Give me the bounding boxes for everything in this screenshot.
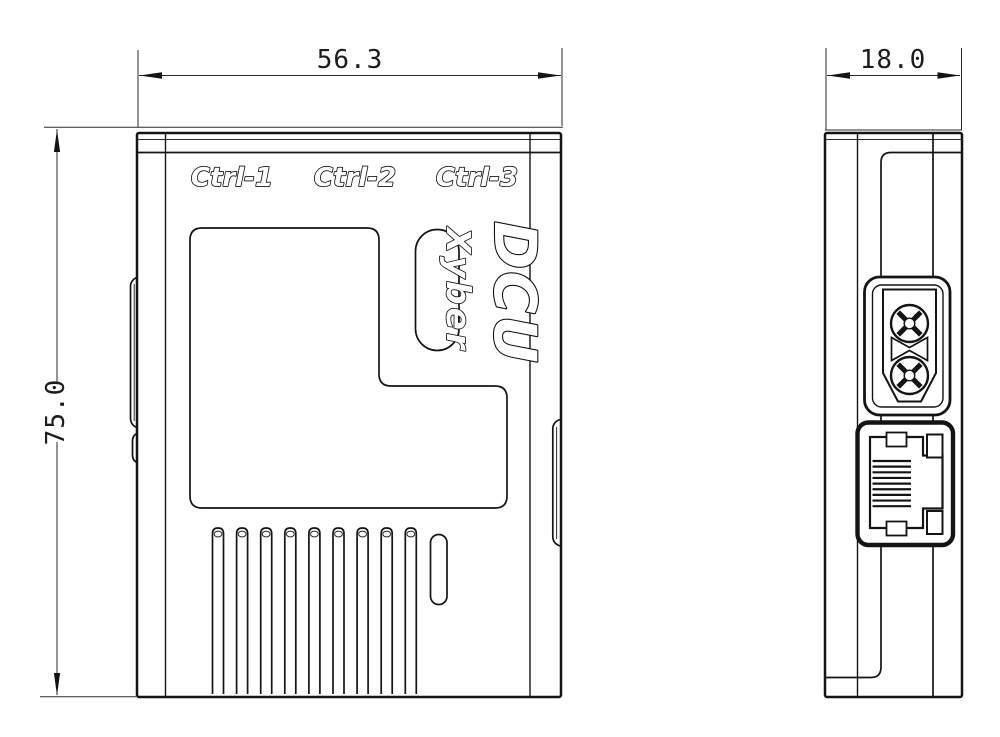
vent-slot-cap xyxy=(214,531,222,537)
front-view: 56.3 75.0 xyxy=(40,45,563,697)
side-view: 18.0 xyxy=(825,45,962,697)
enclosure-front: Ctrl-1 Ctrl-2 Ctrl-3 DCU Xyber xyxy=(131,133,562,697)
vent-slot-cap xyxy=(311,531,319,537)
ctrl-2-label: Ctrl-2 xyxy=(314,163,396,193)
dim-arrow-left xyxy=(140,72,163,78)
mount-tab-top xyxy=(887,433,907,447)
power-connector xyxy=(865,277,951,415)
vent-slot-cap xyxy=(286,531,294,537)
width-dimension: 56.3 xyxy=(138,45,562,127)
vent-slot xyxy=(357,528,368,694)
vent-slot-cap xyxy=(407,531,415,537)
depth-value: 18.0 xyxy=(860,45,927,75)
vent-slot xyxy=(333,528,344,694)
pill-slot xyxy=(431,535,448,605)
brand-name: Xyber xyxy=(439,226,478,352)
front-body-outline xyxy=(137,133,561,697)
power-terminal-top-icon xyxy=(891,305,928,342)
port-labels: Ctrl-1 Ctrl-2 Ctrl-3 xyxy=(191,163,518,193)
width-value: 56.3 xyxy=(317,45,384,75)
power-terminal-bottom-icon xyxy=(891,357,928,394)
vent-slot-cap xyxy=(383,531,391,537)
shield-tab-top xyxy=(927,435,943,458)
vent-slot xyxy=(237,528,248,694)
mount-tab-bottom xyxy=(887,522,907,536)
vent-slot xyxy=(405,528,416,694)
ctrl-1-label: Ctrl-1 xyxy=(191,163,273,193)
ctrl-3-label: Ctrl-3 xyxy=(436,163,518,193)
dim-arrow-right xyxy=(938,72,961,78)
product-logo: DCU xyxy=(481,221,549,365)
dim-arrow-right xyxy=(538,72,561,78)
ethernet-port xyxy=(858,423,954,546)
shield-tab-bottom xyxy=(927,511,943,534)
technical-drawing-canvas: 56.3 75.0 xyxy=(0,0,1000,737)
depth-dimension: 18.0 xyxy=(826,45,962,130)
height-value: 75.0 xyxy=(41,379,71,446)
vent-slot-cap xyxy=(359,531,367,537)
dim-arrow-left xyxy=(828,72,851,78)
vent-slot-cap xyxy=(335,531,343,537)
vent-slot xyxy=(213,528,224,694)
vent-slot-cap xyxy=(238,531,246,537)
brand-badge: Xyber xyxy=(416,226,479,352)
vent-slot xyxy=(309,528,320,694)
vent-slot-cap xyxy=(262,531,270,537)
dim-arrow-bottom xyxy=(54,673,60,696)
vent-slot xyxy=(285,528,296,694)
drawing-svg: 56.3 75.0 xyxy=(0,0,1000,737)
dim-arrow-top xyxy=(54,130,60,153)
vent-slot xyxy=(381,528,392,694)
vent-slot xyxy=(261,528,272,694)
vent-slots xyxy=(213,528,417,694)
